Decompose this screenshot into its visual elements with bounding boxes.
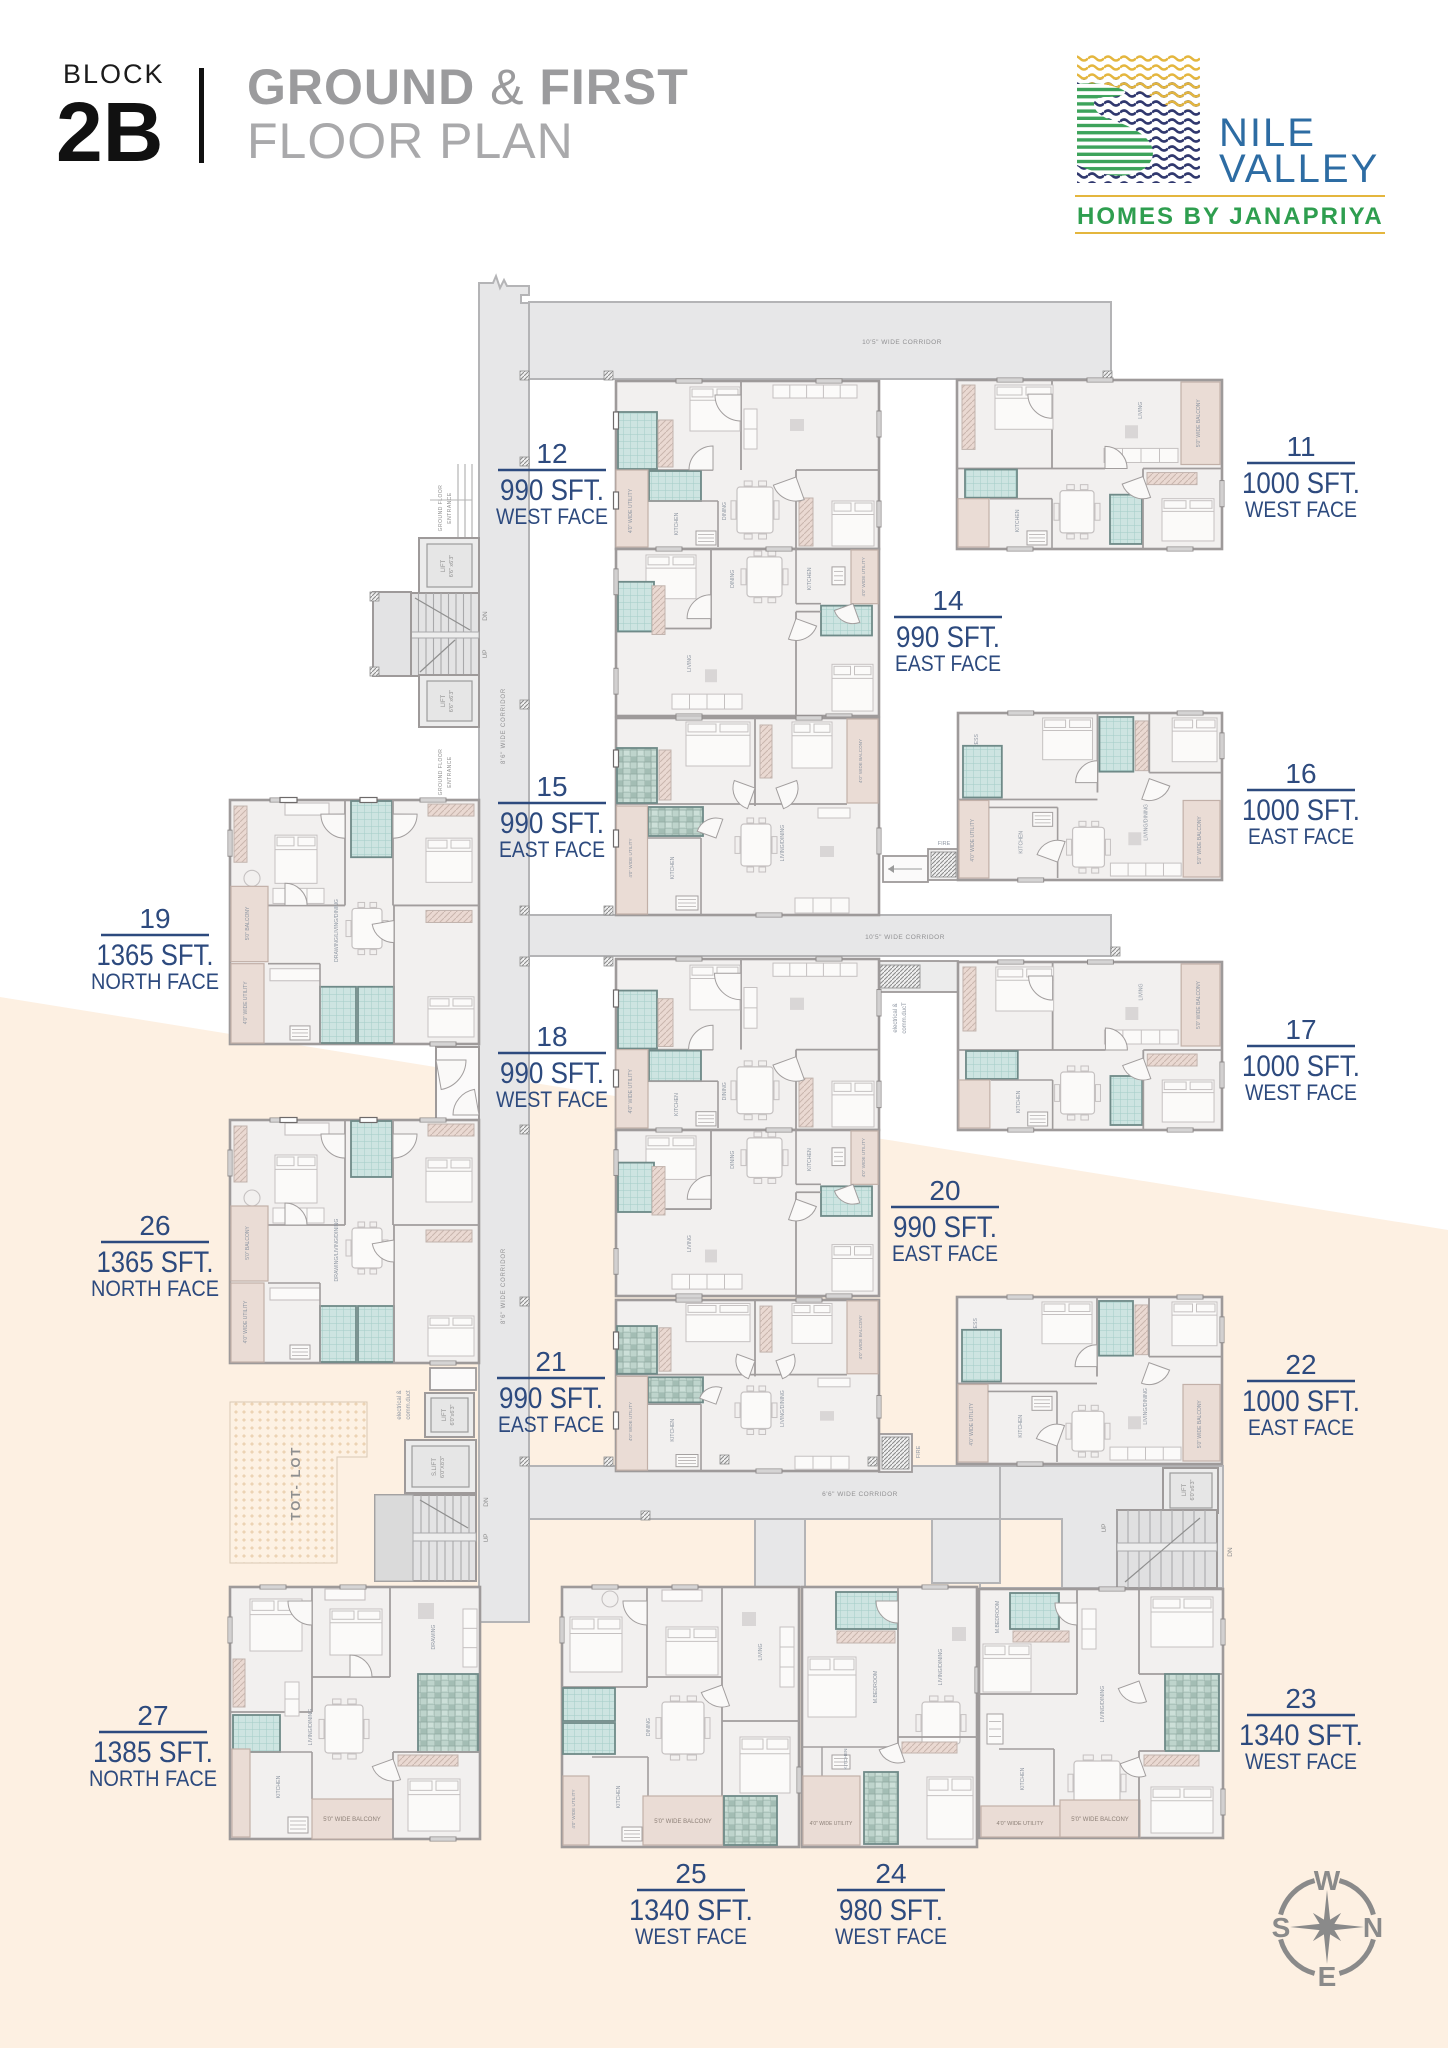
svg-text:LIVING/DINING: LIVING/DINING	[1100, 1686, 1106, 1723]
svg-text:ENTRANCE: ENTRANCE	[447, 756, 453, 788]
svg-text:4'0" WIDE UTILITY: 4'0" WIDE UTILITY	[628, 1069, 634, 1114]
svg-text:5'0" BALCONY: 5'0" BALCONY	[245, 906, 251, 940]
svg-text:1000 SFT.: 1000 SFT.	[1242, 1385, 1360, 1418]
svg-text:LIVING/DINING: LIVING/DINING	[308, 1709, 314, 1746]
svg-text:8'6" WIDE CORRIDOR: 8'6" WIDE CORRIDOR	[501, 1248, 507, 1324]
svg-text:N: N	[1363, 1912, 1383, 1943]
svg-text:22: 22	[1285, 1349, 1316, 1380]
svg-text:electrical &: electrical &	[893, 1003, 899, 1032]
svg-text:ENTRANCE: ENTRANCE	[447, 492, 453, 524]
svg-text:15: 15	[536, 771, 567, 802]
svg-text:4'0" WIDE UTILITY: 4'0" WIDE UTILITY	[571, 1789, 576, 1828]
svg-text:KITCHEN: KITCHEN	[616, 1785, 622, 1808]
svg-text:EAST FACE: EAST FACE	[1248, 1415, 1354, 1440]
svg-text:5'0" BALCONY: 5'0" BALCONY	[245, 1226, 251, 1260]
svg-text:VALLEY: VALLEY	[1219, 147, 1379, 191]
svg-text:FIRE: FIRE	[938, 841, 951, 847]
svg-text:1365 SFT.: 1365 SFT.	[97, 939, 214, 972]
svg-text:GROUND FLOOR: GROUND FLOOR	[438, 485, 444, 532]
svg-text:5'0" WIDE BALCONY: 5'0" WIDE BALCONY	[654, 1819, 712, 1825]
svg-text:UP: UP	[482, 649, 489, 658]
svg-text:LIVING/DINING: LIVING/DINING	[938, 1649, 944, 1686]
svg-text:UP: UP	[483, 1533, 490, 1542]
svg-text:990 SFT.: 990 SFT.	[896, 621, 1000, 654]
svg-text:WEST FACE: WEST FACE	[1245, 497, 1357, 522]
svg-text:KITCHEN: KITCHEN	[807, 567, 813, 590]
svg-text:2B: 2B	[56, 85, 163, 179]
svg-text:DN: DN	[1227, 1547, 1234, 1557]
svg-text:24: 24	[875, 1858, 906, 1889]
svg-text:LIFT: LIFT	[1182, 1484, 1188, 1497]
svg-text:18: 18	[536, 1021, 567, 1052]
svg-text:E: E	[1318, 1961, 1337, 1992]
svg-text:4'0" WIDE UTILITY: 4'0" WIDE UTILITY	[810, 1821, 853, 1827]
svg-text:5'0" WIDE BALCONY: 5'0" WIDE BALCONY	[1197, 1400, 1203, 1449]
svg-text:TOT- LOT: TOT- LOT	[288, 1446, 303, 1521]
svg-text:WEST FACE: WEST FACE	[1245, 1749, 1357, 1774]
svg-text:NORTH FACE: NORTH FACE	[91, 969, 219, 994]
svg-text:990 SFT.: 990 SFT.	[499, 1382, 603, 1415]
svg-text:GROUND FLOOR: GROUND FLOOR	[438, 749, 444, 796]
svg-text:HOMES BY JANAPRIYA: HOMES BY JANAPRIYA	[1077, 203, 1384, 230]
svg-text:4'0" WIDE UTILITY: 4'0" WIDE UTILITY	[628, 1402, 633, 1441]
svg-text:10'5" WIDE CORRIDOR: 10'5" WIDE CORRIDOR	[862, 339, 942, 346]
svg-text:KITCHEN: KITCHEN	[670, 1419, 676, 1442]
svg-text:4'0" WIDE UTILITY: 4'0" WIDE UTILITY	[861, 557, 866, 596]
svg-text:6'0"x6'3": 6'0"x6'3"	[450, 1404, 456, 1425]
svg-text:1340 SFT.: 1340 SFT.	[1239, 1719, 1363, 1752]
svg-text:KITCHEN: KITCHEN	[1019, 831, 1025, 854]
svg-text:DRAWING: DRAWING	[431, 1625, 437, 1650]
svg-text:EAST FACE: EAST FACE	[892, 1241, 998, 1266]
svg-text:LIVING: LIVING	[687, 655, 693, 672]
svg-text:comm.duct: comm.duct	[406, 1390, 412, 1420]
svg-text:25: 25	[675, 1858, 706, 1889]
svg-text:FIRE: FIRE	[916, 1445, 922, 1458]
svg-text:UP: UP	[1101, 1523, 1108, 1532]
svg-text:1365 SFT.: 1365 SFT.	[97, 1246, 214, 1279]
svg-text:GROUND & FIRST: GROUND & FIRST	[247, 59, 689, 115]
svg-text:4'0" WIDE UTILITY: 4'0" WIDE UTILITY	[243, 981, 249, 1024]
svg-text:4'0" WIDE UTILITY: 4'0" WIDE UTILITY	[628, 838, 633, 877]
svg-text:LIVING: LIVING	[687, 1235, 693, 1252]
svg-text:KITCHEN: KITCHEN	[1016, 1090, 1022, 1113]
svg-text:S: S	[1272, 1912, 1291, 1943]
svg-text:19: 19	[139, 903, 170, 934]
svg-text:NORTH FACE: NORTH FACE	[91, 1276, 219, 1301]
svg-text:LIVING/DINING: LIVING/DINING	[780, 825, 786, 862]
svg-text:10'5" WIDE CORRIDOR: 10'5" WIDE CORRIDOR	[865, 934, 945, 941]
svg-text:NORTH FACE: NORTH FACE	[89, 1766, 217, 1791]
svg-text:DN: DN	[483, 1497, 490, 1507]
svg-text:M.BEDROOM: M.BEDROOM	[873, 1671, 879, 1704]
svg-text:WEST FACE: WEST FACE	[835, 1924, 947, 1949]
svg-text:990 SFT.: 990 SFT.	[500, 807, 604, 840]
svg-text:DINING: DINING	[646, 1718, 652, 1736]
svg-text:KITCHEN: KITCHEN	[1018, 1415, 1024, 1438]
svg-text:EAST FACE: EAST FACE	[895, 651, 1001, 676]
svg-text:KITCHEN: KITCHEN	[1020, 1767, 1026, 1790]
svg-text:27: 27	[137, 1700, 168, 1731]
svg-text:5'0" WIDE BALCONY: 5'0" WIDE BALCONY	[323, 1817, 381, 1823]
svg-text:990 SFT.: 990 SFT.	[893, 1211, 997, 1244]
svg-text:DINING: DINING	[722, 1082, 728, 1100]
svg-text:6'0"x6'3": 6'0"x6'3"	[1190, 1479, 1196, 1500]
svg-text:WEST FACE: WEST FACE	[496, 1087, 608, 1112]
svg-text:16: 16	[1285, 758, 1316, 789]
svg-text:4'0" WIDE UTILITY: 4'0" WIDE UTILITY	[628, 488, 634, 533]
svg-text:EAST FACE: EAST FACE	[499, 837, 605, 862]
svg-text:6'6" x6'3": 6'6" x6'3"	[449, 690, 455, 713]
svg-text:4'0" WIDE BALCONY: 4'0" WIDE BALCONY	[858, 1315, 863, 1359]
svg-text:1385 SFT.: 1385 SFT.	[93, 1736, 213, 1769]
svg-text:WEST FACE: WEST FACE	[1245, 1080, 1357, 1105]
svg-text:6'6" WIDE CORRIDOR: 6'6" WIDE CORRIDOR	[822, 1491, 898, 1498]
svg-text:KITCHEN: KITCHEN	[674, 1093, 680, 1116]
svg-text:5'0" WIDE BALCONY: 5'0" WIDE BALCONY	[1196, 399, 1202, 448]
svg-text:DINING: DINING	[730, 1151, 736, 1169]
svg-text:5'0" WIDE BALCONY: 5'0" WIDE BALCONY	[1197, 816, 1203, 865]
svg-text:990 SFT.: 990 SFT.	[500, 1057, 604, 1090]
svg-text:KITCHEN: KITCHEN	[276, 1775, 282, 1798]
svg-text:EAST FACE: EAST FACE	[498, 1412, 604, 1437]
svg-text:17: 17	[1285, 1014, 1316, 1045]
svg-text:4'0" WIDE UTILITY: 4'0" WIDE UTILITY	[969, 1402, 975, 1445]
svg-text:DINING: DINING	[730, 570, 736, 588]
svg-text:LIFT: LIFT	[442, 1409, 448, 1422]
svg-text:DN: DN	[482, 611, 489, 621]
svg-text:4'0" WIDE UTILITY: 4'0" WIDE UTILITY	[970, 818, 976, 861]
svg-text:KITCHEN: KITCHEN	[674, 512, 680, 535]
svg-text:KITCHEN: KITCHEN	[843, 1748, 849, 1770]
svg-text:M.BEDROOM: M.BEDROOM	[995, 1601, 1001, 1634]
svg-text:1340 SFT.: 1340 SFT.	[629, 1894, 753, 1927]
svg-text:WEST FACE: WEST FACE	[635, 1924, 747, 1949]
svg-text:6'0"X8'3": 6'0"X8'3"	[440, 1456, 446, 1478]
svg-text:LIFT: LIFT	[441, 695, 447, 708]
svg-text:KITCHEN: KITCHEN	[670, 856, 676, 879]
svg-text:5'0" WIDE BALCONY: 5'0" WIDE BALCONY	[1071, 1817, 1129, 1823]
svg-text:KITCHEN: KITCHEN	[1015, 509, 1021, 532]
svg-text:6'6" x6'3": 6'6" x6'3"	[449, 555, 455, 578]
svg-text:WEST FACE: WEST FACE	[496, 504, 608, 529]
svg-text:11: 11	[1286, 431, 1315, 462]
svg-text:14: 14	[932, 585, 963, 616]
svg-text:FLOOR PLAN: FLOOR PLAN	[247, 113, 574, 169]
svg-text:26: 26	[139, 1210, 170, 1241]
svg-text:LIVING/DINING: LIVING/DINING	[1143, 1388, 1149, 1425]
svg-text:12: 12	[536, 438, 567, 469]
svg-text:1000 SFT.: 1000 SFT.	[1242, 1050, 1360, 1083]
svg-text:20: 20	[929, 1175, 960, 1206]
svg-text:LIFT: LIFT	[441, 560, 447, 573]
svg-text:4'0" WIDE UTILITY: 4'0" WIDE UTILITY	[996, 1821, 1043, 1827]
svg-text:DINING: DINING	[722, 502, 728, 520]
svg-text:980 SFT.: 980 SFT.	[839, 1894, 943, 1927]
svg-text:4'0" WIDE BALCONY: 4'0" WIDE BALCONY	[858, 739, 863, 783]
svg-text:990 SFT.: 990 SFT.	[500, 474, 604, 507]
svg-text:1000 SFT.: 1000 SFT.	[1242, 467, 1360, 500]
svg-text:4'0" WIDE UTILITY: 4'0" WIDE UTILITY	[243, 1300, 249, 1343]
svg-text:KITCHEN: KITCHEN	[807, 1148, 813, 1171]
svg-text:comm.ducT: comm.ducT	[902, 1002, 908, 1034]
svg-text:21: 21	[535, 1346, 566, 1377]
svg-text:DRAWING/LIVING/DINING: DRAWING/LIVING/DINING	[334, 899, 340, 962]
svg-text:LIVING/DINING: LIVING/DINING	[1143, 804, 1149, 841]
svg-text:5'0" WIDE BALCONY: 5'0" WIDE BALCONY	[1196, 980, 1202, 1029]
svg-text:8'6" WIDE CORRIDOR: 8'6" WIDE CORRIDOR	[501, 688, 507, 764]
svg-text:LIVING/DINING: LIVING/DINING	[780, 1390, 786, 1427]
svg-text:S.LIFT: S.LIFT	[432, 1458, 438, 1476]
svg-text:W: W	[1314, 1865, 1341, 1896]
svg-text:electrical &: electrical &	[397, 1390, 403, 1419]
svg-text:DRAWING/LIVING/DINING: DRAWING/LIVING/DINING	[334, 1219, 340, 1282]
svg-text:1000 SFT.: 1000 SFT.	[1242, 794, 1360, 827]
svg-text:EAST FACE: EAST FACE	[1248, 824, 1354, 849]
svg-text:23: 23	[1285, 1683, 1316, 1714]
svg-text:LIVING: LIVING	[1138, 402, 1144, 419]
svg-text:LIVING: LIVING	[758, 1643, 764, 1660]
svg-text:LIVING: LIVING	[1138, 983, 1144, 1000]
svg-text:4'0" WIDE UTILITY: 4'0" WIDE UTILITY	[861, 1138, 866, 1177]
